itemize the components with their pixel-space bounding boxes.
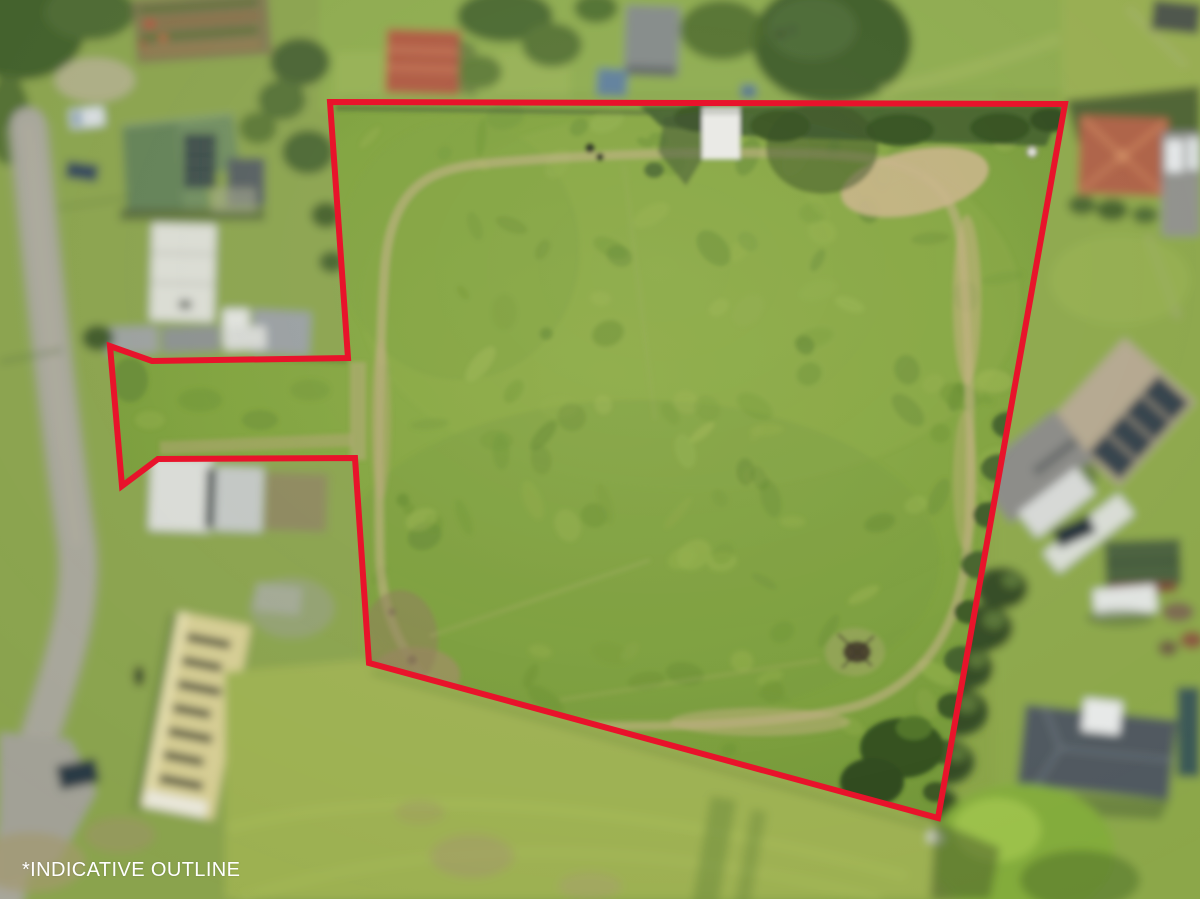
aerial-photo-canvas	[0, 0, 1200, 899]
aerial-photo: *INDICATIVE OUTLINE	[0, 0, 1200, 899]
caption-indicative-outline: *INDICATIVE OUTLINE	[22, 860, 240, 880]
light-haze	[0, 0, 1200, 899]
